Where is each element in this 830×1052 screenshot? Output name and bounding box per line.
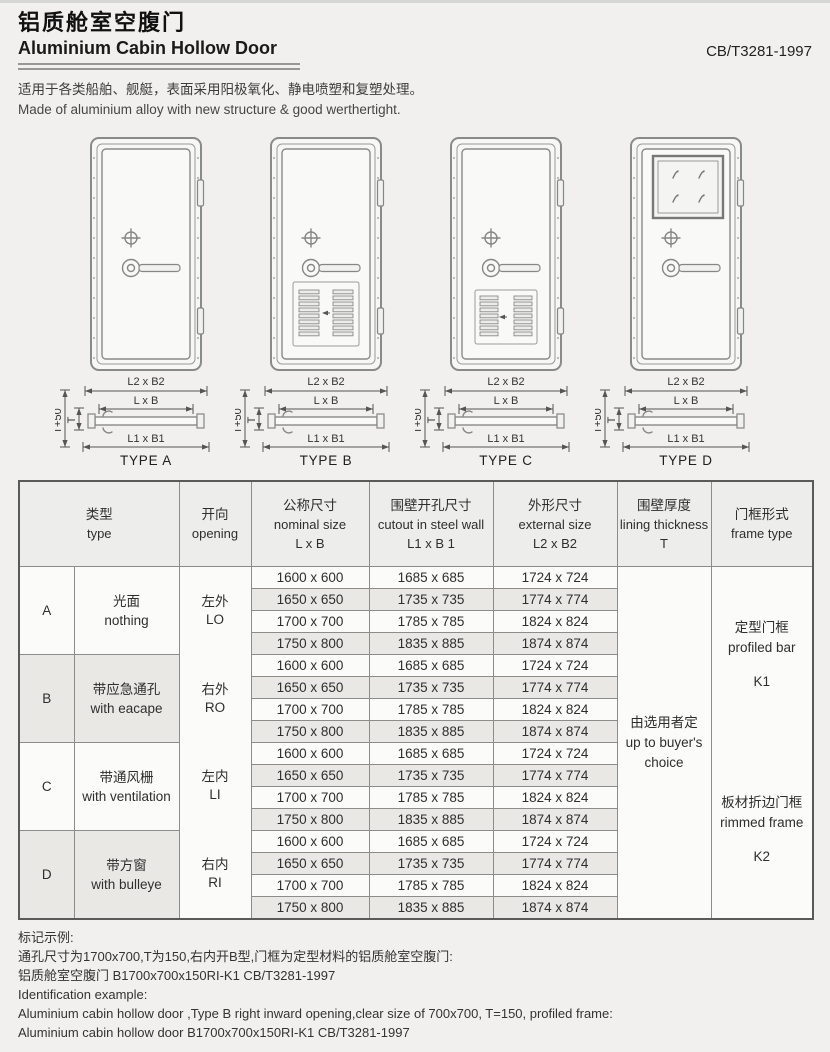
- nominal-size-cell: 1700 x 700: [251, 875, 369, 897]
- svg-text:T+50: T+50: [235, 408, 244, 433]
- col-header-cutout-zh: 围壁开孔尺寸: [370, 496, 493, 515]
- standard-number: CB/T3281-1997: [706, 43, 812, 60]
- svg-text:L x B: L x B: [494, 395, 519, 407]
- svg-text:T: T: [66, 416, 78, 423]
- svg-text:L1 x B1: L1 x B1: [487, 433, 524, 445]
- size-table-body: A光面nothing左外LO右外RO左内LI右内RI1600 x 6001685…: [19, 567, 813, 920]
- door-outline: [271, 138, 381, 370]
- col-header-opening-zh: 开向: [180, 505, 251, 524]
- col-header-nominal-en: nominal size: [252, 515, 369, 534]
- square-window: [653, 156, 723, 218]
- example-zh-line1: 通孔尺寸为1700x700,T为150,右内开B型,门框为定型材料的铝质舱室空腹…: [18, 947, 812, 966]
- description-block: 适用于各类船舶、舰艇，表面采用阳极氧化、静电喷塑和复塑处理。 Made of a…: [0, 70, 830, 120]
- col-header-nominal: 公称尺寸 nominal size L x B: [251, 481, 369, 567]
- cutout-size-cell: 1835 x 885: [369, 633, 493, 655]
- svg-text:L x B: L x B: [134, 395, 159, 407]
- cutout-size-cell: 1685 x 685: [369, 831, 493, 853]
- type-label: TYPE B: [300, 453, 353, 468]
- col-header-type-zh: 类型: [20, 505, 179, 524]
- door-outline: [91, 138, 201, 370]
- nominal-size-cell: 1650 x 650: [251, 589, 369, 611]
- svg-text:T+50: T+50: [415, 408, 424, 433]
- door-diagram-c: L2 x B2L x BL1 x B1T+50TTYPE C: [415, 134, 595, 468]
- type-label: TYPE A: [120, 453, 172, 468]
- page-title-en: Aluminium Cabin Hollow Door: [18, 37, 812, 60]
- title-underline: [18, 63, 300, 70]
- cutout-size-cell: 1835 x 885: [369, 809, 493, 831]
- col-header-external-zh: 外形尺寸: [494, 496, 617, 515]
- nominal-size-cell: 1600 x 600: [251, 743, 369, 765]
- external-size-cell: 1774 x 774: [493, 589, 617, 611]
- svg-text:L2 x B2: L2 x B2: [307, 376, 344, 388]
- table-row: A光面nothing左外LO右外RO左内LI右内RI1600 x 6001685…: [19, 567, 813, 589]
- type-letter-cell: C: [19, 743, 74, 831]
- col-header-frame: 门框形式 frame type: [711, 481, 813, 567]
- size-table: 类型 type 开向 opening 公称尺寸 nominal size L x…: [18, 480, 814, 920]
- example-zh-title: 标记示例:: [18, 928, 812, 947]
- type-label: TYPE D: [659, 453, 713, 468]
- col-header-opening: 开向 opening: [179, 481, 251, 567]
- description-en: Made of aluminium alloy with new structu…: [18, 100, 812, 120]
- nominal-size-cell: 1750 x 800: [251, 721, 369, 743]
- nominal-size-cell: 1700 x 700: [251, 611, 369, 633]
- col-header-type-en: type: [20, 524, 179, 543]
- type-desc-cell: 带应急通孔with eacape: [74, 655, 179, 743]
- nominal-size-cell: 1750 x 800: [251, 809, 369, 831]
- external-size-cell: 1824 x 824: [493, 611, 617, 633]
- identification-example: 标记示例: 通孔尺寸为1700x700,T为150,右内开B型,门框为定型材料的…: [0, 920, 830, 1042]
- svg-text:L1 x B1: L1 x B1: [307, 433, 344, 445]
- external-size-cell: 1724 x 724: [493, 567, 617, 589]
- col-header-nominal-zh: 公称尺寸: [252, 496, 369, 515]
- nominal-size-cell: 1750 x 800: [251, 633, 369, 655]
- example-en-line1: Aluminium cabin hollow door ,Type B righ…: [18, 1004, 812, 1023]
- col-header-frame-en: frame type: [712, 524, 813, 543]
- col-header-lining-zh: 围壁厚度: [618, 496, 711, 515]
- svg-text:T+50: T+50: [595, 408, 604, 433]
- door-figure-d: L2 x B2L x BL1 x B1T+50TTYPE D: [595, 134, 775, 468]
- cutout-size-cell: 1835 x 885: [369, 897, 493, 920]
- cutout-size-cell: 1685 x 685: [369, 567, 493, 589]
- section-diagram: L2 x B2L x BL1 x B1T+50T: [235, 376, 389, 452]
- nominal-size-cell: 1650 x 650: [251, 853, 369, 875]
- catalog-page: 铝质舱室空腹门 Aluminium Cabin Hollow Door CB/T…: [0, 0, 830, 1052]
- external-size-cell: 1724 x 724: [493, 655, 617, 677]
- nominal-size-cell: 1750 x 800: [251, 897, 369, 920]
- col-header-external-formula: L2 x B2: [494, 534, 617, 553]
- external-size-cell: 1724 x 724: [493, 831, 617, 853]
- svg-text:L1 x B1: L1 x B1: [667, 433, 704, 445]
- example-en-line2: Aluminium cabin hollow door B1700x700x15…: [18, 1023, 812, 1042]
- door-figure-a: L2 x B2L x BL1 x B1T+50TTYPE A: [55, 134, 235, 468]
- svg-text:L x B: L x B: [674, 395, 699, 407]
- col-header-external: 外形尺寸 external size L2 x B2: [493, 481, 617, 567]
- section-diagram: L2 x B2L x BL1 x B1T+50T: [55, 376, 209, 452]
- col-header-type: 类型 type: [19, 481, 179, 567]
- type-desc-cell: 光面nothing: [74, 567, 179, 655]
- example-zh-line2: 铝质舱室空腹门 B1700x700x150RI-K1 CB/T3281-1997: [18, 966, 812, 985]
- col-header-frame-zh: 门框形式: [712, 505, 813, 524]
- external-size-cell: 1824 x 824: [493, 875, 617, 897]
- external-size-cell: 1774 x 774: [493, 677, 617, 699]
- cutout-size-cell: 1685 x 685: [369, 743, 493, 765]
- svg-text:T+50: T+50: [55, 408, 64, 433]
- nominal-size-cell: 1600 x 600: [251, 655, 369, 677]
- table-header-row: 类型 type 开向 opening 公称尺寸 nominal size L x…: [19, 481, 813, 567]
- svg-text:T: T: [426, 416, 438, 423]
- col-header-lining-formula: T: [618, 534, 711, 553]
- type-desc-cell: 带通风栅with ventilation: [74, 743, 179, 831]
- col-header-cutout: 围壁开孔尺寸 cutout in steel wall L1 x B 1: [369, 481, 493, 567]
- svg-text:T: T: [606, 416, 618, 423]
- svg-text:L2 x B2: L2 x B2: [487, 376, 524, 388]
- col-header-nominal-formula: L x B: [252, 534, 369, 553]
- frame-type-cell: 定型门框profiled barK1板材折边门框rimmed frameK2: [711, 567, 813, 920]
- col-header-cutout-en: cutout in steel wall: [370, 515, 493, 534]
- cutout-size-cell: 1735 x 735: [369, 589, 493, 611]
- col-header-opening-en: opening: [180, 524, 251, 543]
- cutout-size-cell: 1685 x 685: [369, 655, 493, 677]
- svg-text:T: T: [246, 416, 258, 423]
- door-diagram-a: L2 x B2L x BL1 x B1T+50TTYPE A: [55, 134, 235, 468]
- nominal-size-cell: 1700 x 700: [251, 699, 369, 721]
- type-label: TYPE C: [479, 453, 533, 468]
- external-size-cell: 1824 x 824: [493, 787, 617, 809]
- type-letter-cell: A: [19, 567, 74, 655]
- cutout-size-cell: 1735 x 735: [369, 677, 493, 699]
- page-title-zh: 铝质舱室空腹门: [18, 9, 812, 37]
- external-size-cell: 1724 x 724: [493, 743, 617, 765]
- external-size-cell: 1874 x 874: [493, 633, 617, 655]
- cutout-size-cell: 1835 x 885: [369, 721, 493, 743]
- description-zh: 适用于各类船舶、舰艇，表面采用阳极氧化、静电喷塑和复塑处理。: [18, 80, 812, 100]
- type-letter-cell: B: [19, 655, 74, 743]
- svg-text:L2 x B2: L2 x B2: [667, 376, 704, 388]
- type-letter-cell: D: [19, 831, 74, 920]
- svg-text:L1 x B1: L1 x B1: [127, 433, 164, 445]
- cutout-size-cell: 1785 x 785: [369, 875, 493, 897]
- door-outline: [451, 138, 561, 370]
- section-diagram: L2 x B2L x BL1 x B1T+50T: [415, 376, 569, 452]
- nominal-size-cell: 1600 x 600: [251, 567, 369, 589]
- col-header-cutout-formula: L1 x B 1: [370, 534, 493, 553]
- col-header-lining: 围壁厚度 lining thickness T: [617, 481, 711, 567]
- external-size-cell: 1874 x 874: [493, 721, 617, 743]
- door-diagram-b: L2 x B2L x BL1 x B1T+50TTYPE B: [235, 134, 415, 468]
- cutout-size-cell: 1735 x 735: [369, 765, 493, 787]
- cutout-size-cell: 1785 x 785: [369, 611, 493, 633]
- opening-cell: 左外LO右外RO左内LI右内RI: [179, 567, 251, 920]
- door-figure-c: L2 x B2L x BL1 x B1T+50TTYPE C: [415, 134, 595, 468]
- external-size-cell: 1874 x 874: [493, 897, 617, 920]
- svg-text:L2 x B2: L2 x B2: [127, 376, 164, 388]
- cutout-size-cell: 1785 x 785: [369, 699, 493, 721]
- external-size-cell: 1824 x 824: [493, 699, 617, 721]
- external-size-cell: 1774 x 774: [493, 853, 617, 875]
- nominal-size-cell: 1650 x 650: [251, 765, 369, 787]
- nominal-size-cell: 1700 x 700: [251, 787, 369, 809]
- external-size-cell: 1774 x 774: [493, 765, 617, 787]
- external-size-cell: 1874 x 874: [493, 809, 617, 831]
- example-en-title: Identification example:: [18, 985, 812, 1004]
- col-header-lining-en: lining thickness: [618, 515, 711, 534]
- nominal-size-cell: 1650 x 650: [251, 677, 369, 699]
- section-diagram: L2 x B2L x BL1 x B1T+50T: [595, 376, 749, 452]
- type-desc-cell: 带方窗with bulleye: [74, 831, 179, 920]
- cutout-size-cell: 1735 x 735: [369, 853, 493, 875]
- lining-thickness-cell: 由选用者定up to buyer'schoice: [617, 567, 711, 920]
- nominal-size-cell: 1600 x 600: [251, 831, 369, 853]
- door-figure-b: L2 x B2L x BL1 x B1T+50TTYPE B: [235, 134, 415, 468]
- svg-text:L x B: L x B: [314, 395, 339, 407]
- door-diagrams-row: L2 x B2L x BL1 x B1T+50TTYPE AL2 x B2L x…: [0, 134, 830, 468]
- col-header-external-en: external size: [494, 515, 617, 534]
- page-header: 铝质舱室空腹门 Aluminium Cabin Hollow Door CB/T…: [0, 3, 830, 70]
- cutout-size-cell: 1785 x 785: [369, 787, 493, 809]
- door-diagram-d: L2 x B2L x BL1 x B1T+50TTYPE D: [595, 134, 775, 468]
